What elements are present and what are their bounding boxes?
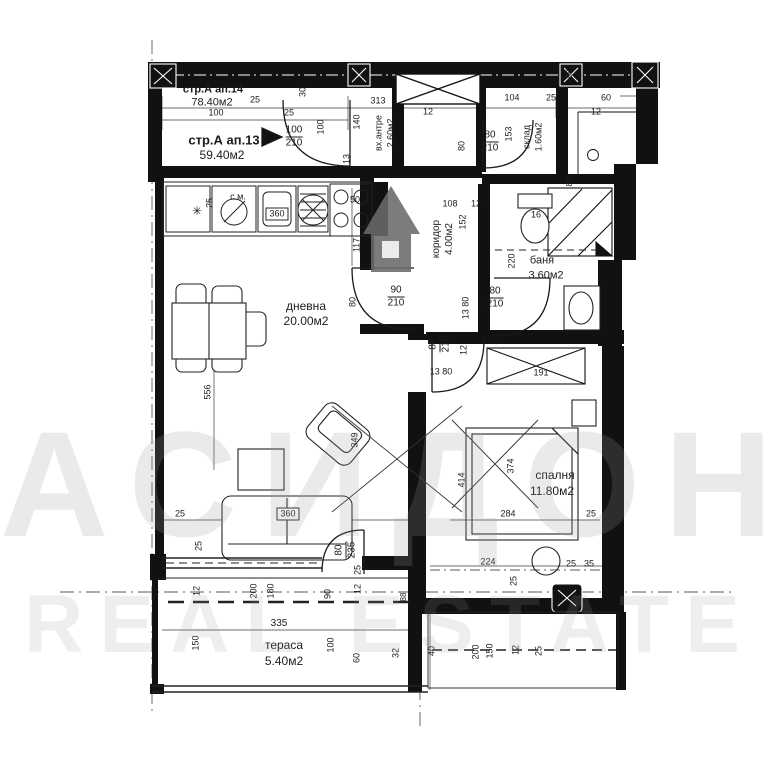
dim-label: 349 — [351, 432, 360, 447]
dim-label: 414 — [458, 472, 467, 487]
dim-label: 150 — [486, 643, 495, 658]
dim-label: 88 — [566, 70, 574, 79]
dim-label: 220 — [508, 253, 517, 268]
room-bathroom-area: 3.60м2 — [528, 271, 563, 282]
dim-label: 60 — [601, 94, 611, 103]
toilet-tag: 16 — [531, 211, 541, 220]
room-living-area: 20.00м2 — [284, 315, 329, 327]
door-size-label: 80210 — [487, 287, 504, 310]
dim-label: 100 — [327, 637, 336, 652]
dim-label: 12 — [423, 108, 433, 117]
dim-label: 100 — [208, 109, 223, 118]
dim-label: 90 — [324, 589, 333, 599]
dim-label: 374 — [507, 458, 516, 473]
dim-label: 153 — [505, 126, 514, 141]
door-size-label: 90210 — [388, 286, 405, 309]
dim-label: 80 — [458, 141, 467, 151]
room-storage-label: склад — [523, 125, 532, 149]
dim-label: 13 80 — [462, 297, 471, 320]
dim-label: 12 — [354, 584, 363, 594]
dim-label: 80 — [349, 297, 358, 307]
dim-label: 25 — [250, 96, 260, 105]
apartment-14-label: стр.А ап.14 — [183, 85, 243, 96]
dim-label: 224 — [480, 558, 495, 567]
dim-label: 40 — [428, 646, 437, 656]
room-bedroom-area: 11.80м2 — [530, 485, 574, 497]
dim-label: 284 — [500, 510, 515, 519]
dim-label: 12 — [512, 645, 521, 655]
dim-label: 150 — [192, 635, 201, 650]
dim-label: 191 — [533, 369, 548, 378]
dim-label: 104 — [504, 94, 519, 103]
apartment-13-area: 59.40м2 — [200, 149, 245, 161]
dim-label: 556 — [204, 384, 213, 399]
dim-label: 25 — [546, 94, 556, 103]
dim-label: 30 — [299, 87, 308, 97]
door-size-label: 80210 — [429, 336, 452, 353]
door-size-label: 80235 — [335, 542, 358, 559]
room-storage-area: 1.60м2 — [535, 123, 544, 152]
room-corridor-label: коридор — [432, 220, 442, 258]
dim-label: 12 — [460, 345, 469, 355]
apartment-13-label: стр.А ап.13 — [188, 134, 259, 147]
dim-label: 335 — [271, 619, 288, 629]
dim-label: 200 — [250, 583, 259, 598]
dim-label: 12 — [591, 108, 601, 117]
labels-layer: стр.А ап.1478.40м22510025стр.А ап.1359.4… — [0, 0, 780, 780]
room-corridor-area: 4.00м2 — [445, 223, 455, 255]
dim-label: 12 — [193, 586, 202, 596]
room-terrace-label: тераса — [265, 639, 303, 651]
room-entry-hall-label: вх.антре — [375, 115, 384, 151]
door-size-label: 80210 — [482, 131, 499, 154]
dim-label: 25 — [586, 510, 596, 519]
room-bedroom-label: спалня — [535, 469, 574, 481]
dim-label: 117 — [353, 238, 362, 252]
room-terrace-area: 5.40м2 — [265, 655, 303, 667]
floor-plan-page: стр.А ап.1478.40м22510025стр.А ап.1359.4… — [0, 0, 780, 780]
washing-machine-tag: с.м. — [230, 193, 246, 202]
dim-label: 25 — [566, 560, 576, 569]
dim-label: 100 — [317, 119, 326, 134]
dim-label: 88 — [400, 593, 408, 602]
dim-label: 50 — [350, 196, 360, 205]
sofa-tag: 360 — [276, 508, 299, 521]
dim-label: 13 80 — [430, 368, 453, 377]
dim-label: 313 — [370, 97, 385, 106]
dim-label: 200 — [472, 644, 481, 659]
dim-label: 25 — [354, 565, 363, 575]
dim-label: 12 — [471, 200, 481, 209]
dim-label: 13 — [343, 154, 352, 164]
dim-label: 180 — [267, 583, 276, 598]
room-living-label: дневна — [286, 300, 326, 312]
dim-label: 108 — [442, 200, 457, 209]
kitchen-sink-tag: 360 — [265, 208, 288, 221]
dim-label: 32 — [392, 648, 401, 658]
dim-label: 25 — [535, 646, 544, 656]
dim-label: 152 — [459, 214, 468, 229]
dim-label: 25 — [284, 109, 294, 118]
dim-label: 25 — [175, 510, 185, 519]
fridge-snowflake-icon: ✳ — [192, 205, 202, 217]
dim-label: 140 — [353, 114, 362, 129]
door-size-label: 100210 — [286, 126, 303, 149]
dim-label: 25 — [510, 576, 519, 586]
dim-label: 35 — [584, 560, 594, 569]
room-entry-hall-area: 2.60м2 — [387, 119, 396, 148]
dim-label: 25 — [195, 541, 204, 551]
dim-label: 60 — [353, 653, 362, 663]
room-bathroom-label: баня — [530, 256, 554, 267]
dim-label: 25 — [206, 198, 215, 208]
dim-label: 88 — [566, 178, 574, 187]
